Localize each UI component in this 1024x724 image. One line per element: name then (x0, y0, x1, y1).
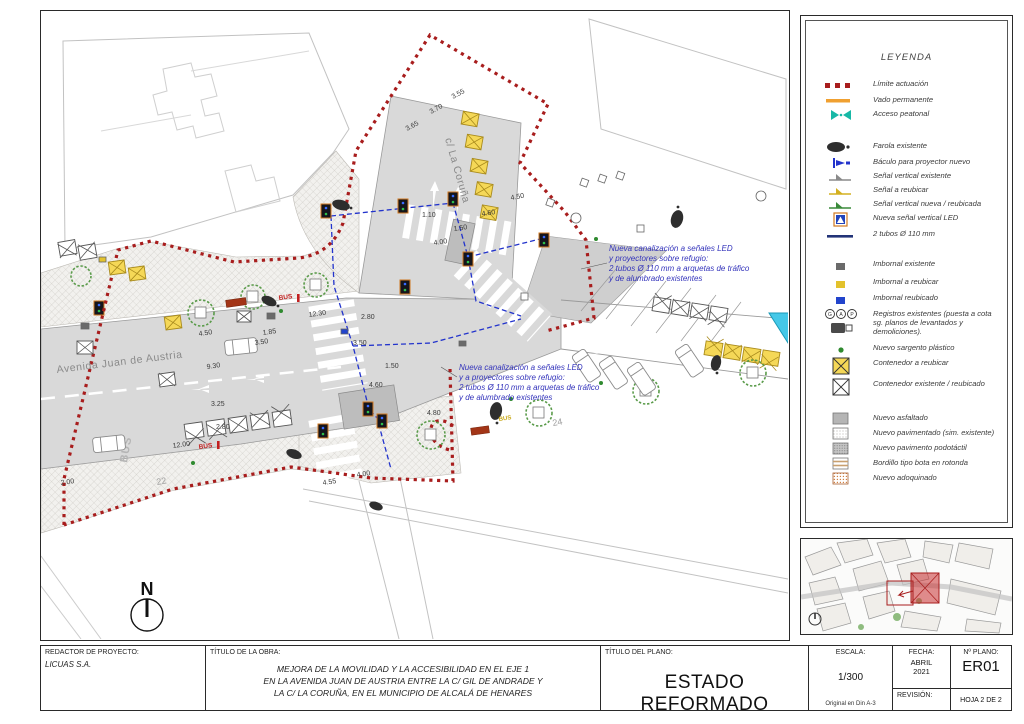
nueva-senal-led-icon (821, 212, 863, 226)
imbornal-existente-icon (821, 258, 863, 272)
senal-a-reubicar-icon (821, 184, 863, 198)
registros-existentes-icon: GAP (821, 308, 863, 322)
svg-text:y de alumbrado existentes: y de alumbrado existentes (458, 393, 552, 402)
svg-text:y de alumbrado existentes: y de alumbrado existentes (608, 274, 702, 283)
limite-actuacion-icon (821, 78, 863, 92)
bordillo-bota-icon (821, 457, 863, 471)
legend-item: Imbornal existente (815, 258, 997, 274)
nuevo-adoquinado-icon (821, 472, 863, 486)
titleblock-hoja-cell: HOJA 2 DE 2 (950, 688, 1012, 711)
svg-text:4.50: 4.50 (510, 193, 525, 202)
svg-text:2 tubos Ø 110 mm a arquetas de: 2 tubos Ø 110 mm a arquetas de tráfico (458, 383, 600, 392)
svg-text:2 tubos Ø 110 mm a arquetas de: 2 tubos Ø 110 mm a arquetas de tráfico (608, 264, 750, 273)
pavimento-podotactil-icon (821, 442, 863, 456)
house-number: 22 (156, 475, 168, 487)
svg-text:A: A (839, 312, 843, 318)
escala-note: Original en Din A-3 (809, 701, 892, 707)
obra-title: MEJORA DE LA MOVILIDAD Y LA ACCESIBILIDA… (206, 663, 600, 699)
plan-sheet: BUS (0, 0, 1024, 724)
titleblock-fecha-cell: FECHA: ABRIL 2021 (892, 645, 951, 689)
svg-text:3.25: 3.25 (211, 401, 225, 408)
hoja-value: HOJA 2 DE 2 (951, 697, 1011, 704)
legend-item: Imbornal a reubicar (815, 276, 997, 292)
titleblock-escala-cell: ESCALA: 1/300 Original en Din A-3 (808, 645, 893, 711)
svg-text:N: N (141, 579, 154, 599)
svg-text:1.10: 1.10 (422, 212, 436, 219)
location-map (800, 538, 1013, 635)
svg-text:1.50: 1.50 (385, 363, 399, 370)
svg-text:3.50: 3.50 (353, 340, 367, 347)
house-number: 24 (552, 416, 564, 428)
svg-text:2.80: 2.80 (361, 314, 375, 321)
titleblock-redactor-cell: REDACTOR DE PROYECTO: LICUAS S.A. (40, 645, 206, 711)
legend-item: Acceso peatonal (815, 108, 997, 124)
contenedor-existente-icon (821, 378, 863, 392)
nuevo-asfaltado-icon (821, 412, 863, 426)
legend-item: Nueva señal vertical LED (815, 212, 997, 228)
legend-item: Nuevo adoquinado (815, 472, 997, 488)
nuevo-pavimentado-icon (821, 427, 863, 441)
svg-text:4.80: 4.80 (427, 410, 441, 417)
fecha-value: ABRIL 2021 (893, 658, 950, 676)
bus-stop-relocate-label: BUS (498, 415, 511, 423)
svg-text:y a proyectores sobre refugio:: y a proyectores sobre refugio: (458, 373, 565, 382)
titleblock-obra-cell: TÍTULO DE LA OBRA: MEJORA DE LA MOVILIDA… (205, 645, 601, 711)
plan-drawing: BUS (41, 11, 788, 639)
svg-text:3.55: 3.55 (451, 88, 466, 101)
vado-permanente-icon (821, 94, 863, 108)
legend-item: 2 tubos Ø 110 mm (815, 228, 997, 244)
acceso-peatonal-icon (821, 108, 863, 122)
annotation-canalizacion-2: Nueva canalización a señales LED y a pro… (441, 363, 600, 402)
svg-text:P: P (850, 312, 854, 318)
legend-item: Contenedor existente / reubicado (815, 378, 997, 404)
svg-text:y proyectores sobre refugio:: y proyectores sobre refugio: (608, 254, 708, 263)
redactor-value: LICUAS S.A. (45, 660, 91, 669)
north-arrow: N (131, 579, 163, 631)
location-map-drawing (801, 539, 1012, 634)
sargento-plastico-icon (821, 342, 863, 356)
svg-text:2.80: 2.80 (216, 424, 230, 431)
senal-existente-icon (821, 170, 863, 184)
titleblock-revision-cell: REVISIÓN: (892, 688, 951, 711)
bus-stop-label: BUS (278, 293, 293, 302)
senal-nueva-icon (821, 198, 863, 212)
plano-title: ESTADO REFORMADO (601, 672, 808, 716)
contenedor-a-reubicar-icon (821, 357, 863, 371)
nplano-value: ER01 (951, 658, 1011, 675)
svg-text:Nueva canalización a señales L: Nueva canalización a señales LED (609, 244, 733, 253)
legend-item: GAP Registros existentes (puesta a cota … (815, 308, 997, 338)
escala-value: 1/300 (809, 672, 892, 683)
legend-item: Nuevo sargento plástico (815, 342, 997, 358)
imbornal-reubicado-icon (821, 292, 863, 306)
legend-item: Nuevo pavimentado (sim. existente) (815, 427, 997, 443)
dos-tubos-icon (821, 228, 863, 242)
titleblock-nplano-cell: Nº PLANO: ER01 (950, 645, 1012, 689)
imbornal-a-reubicar-icon (821, 276, 863, 290)
legend-item: Nuevo pavimento podotáctil (815, 442, 997, 458)
legend-item: Límite actuación (815, 78, 997, 94)
titleblock-plano-cell: TÍTULO DEL PLANO: ESTADO REFORMADO (600, 645, 809, 711)
legend-item: Nuevo asfaltado (815, 412, 997, 428)
legend-title: LEYENDA (801, 52, 1012, 63)
legend-item: Bordillo tipo bota en rotonda (815, 457, 997, 473)
svg-text:4.55: 4.55 (322, 478, 337, 487)
baculo-proyector-icon (821, 156, 863, 170)
svg-text:4.60: 4.60 (369, 382, 383, 389)
legend-panel: LEYENDA Límite actuación Vado permanente… (800, 15, 1013, 528)
farola-existente-icon (821, 140, 863, 154)
legend-item: Farola existente (815, 140, 997, 156)
legend-item: Imbornal reubicado (815, 292, 997, 308)
svg-text:G: G (828, 312, 832, 318)
svg-text:Nueva canalización a señales L: Nueva canalización a señales LED (459, 363, 583, 372)
main-drawing-frame: BUS (40, 10, 790, 641)
legend-item: Contenedor a reubicar (815, 357, 997, 377)
